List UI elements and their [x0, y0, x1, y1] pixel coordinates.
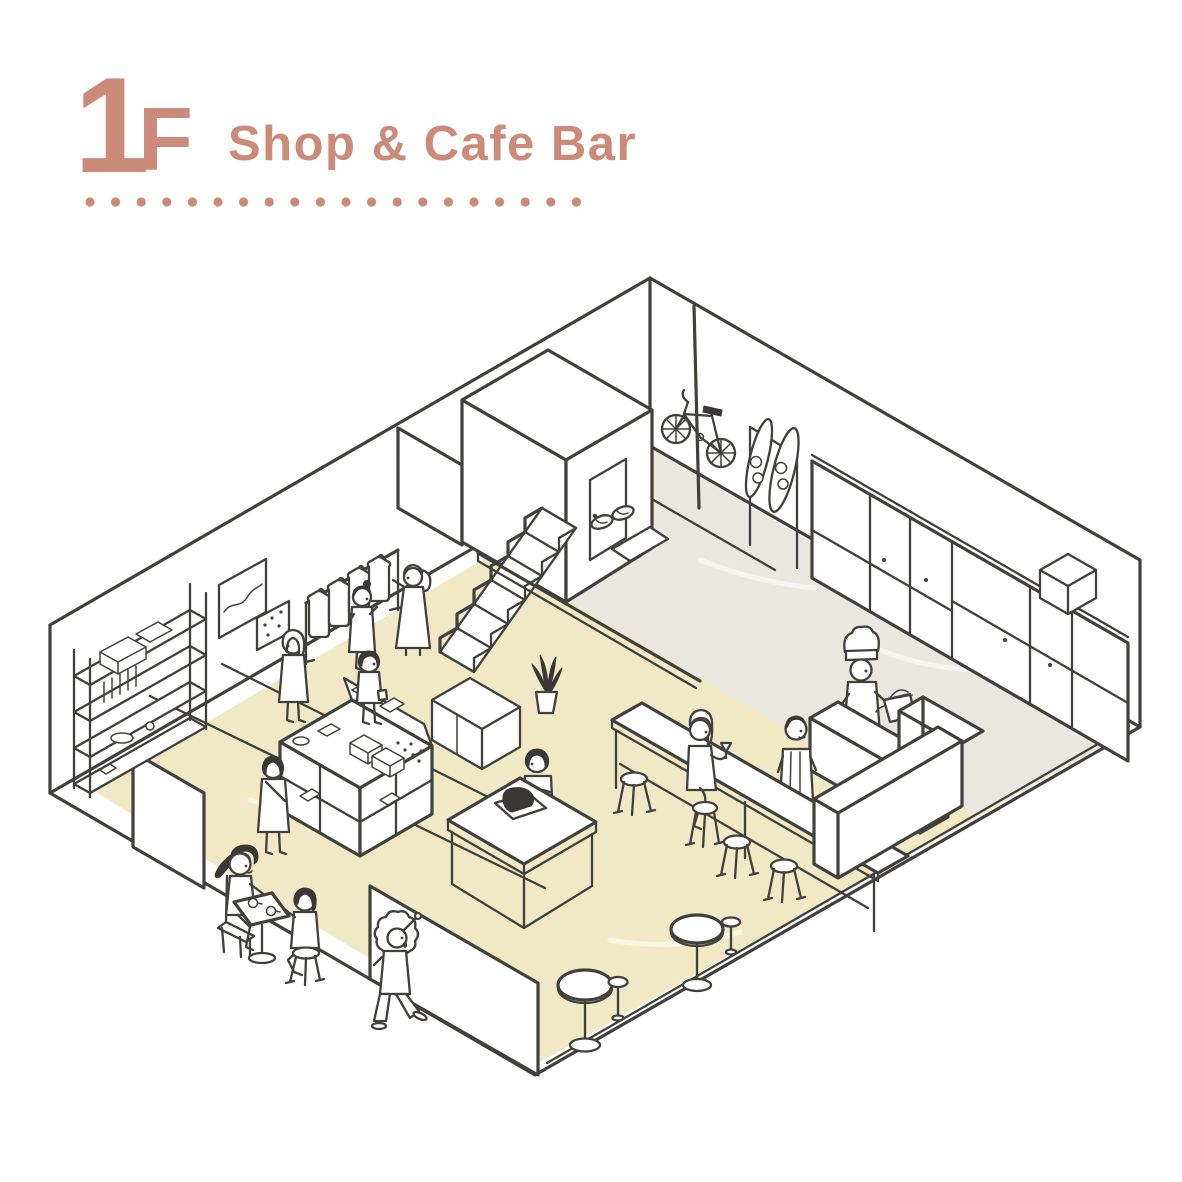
dotted-divider [85, 197, 581, 206]
floorplan-illustration: 1 F Shop & Cafe Bar [0, 0, 1182, 1182]
page: 1 F Shop & Cafe Bar [0, 0, 1182, 1182]
page-title: Shop & Cafe Bar [228, 117, 637, 171]
floor-letter-label: F [138, 90, 193, 190]
header: 1 F Shop & Cafe Bar [74, 49, 637, 207]
